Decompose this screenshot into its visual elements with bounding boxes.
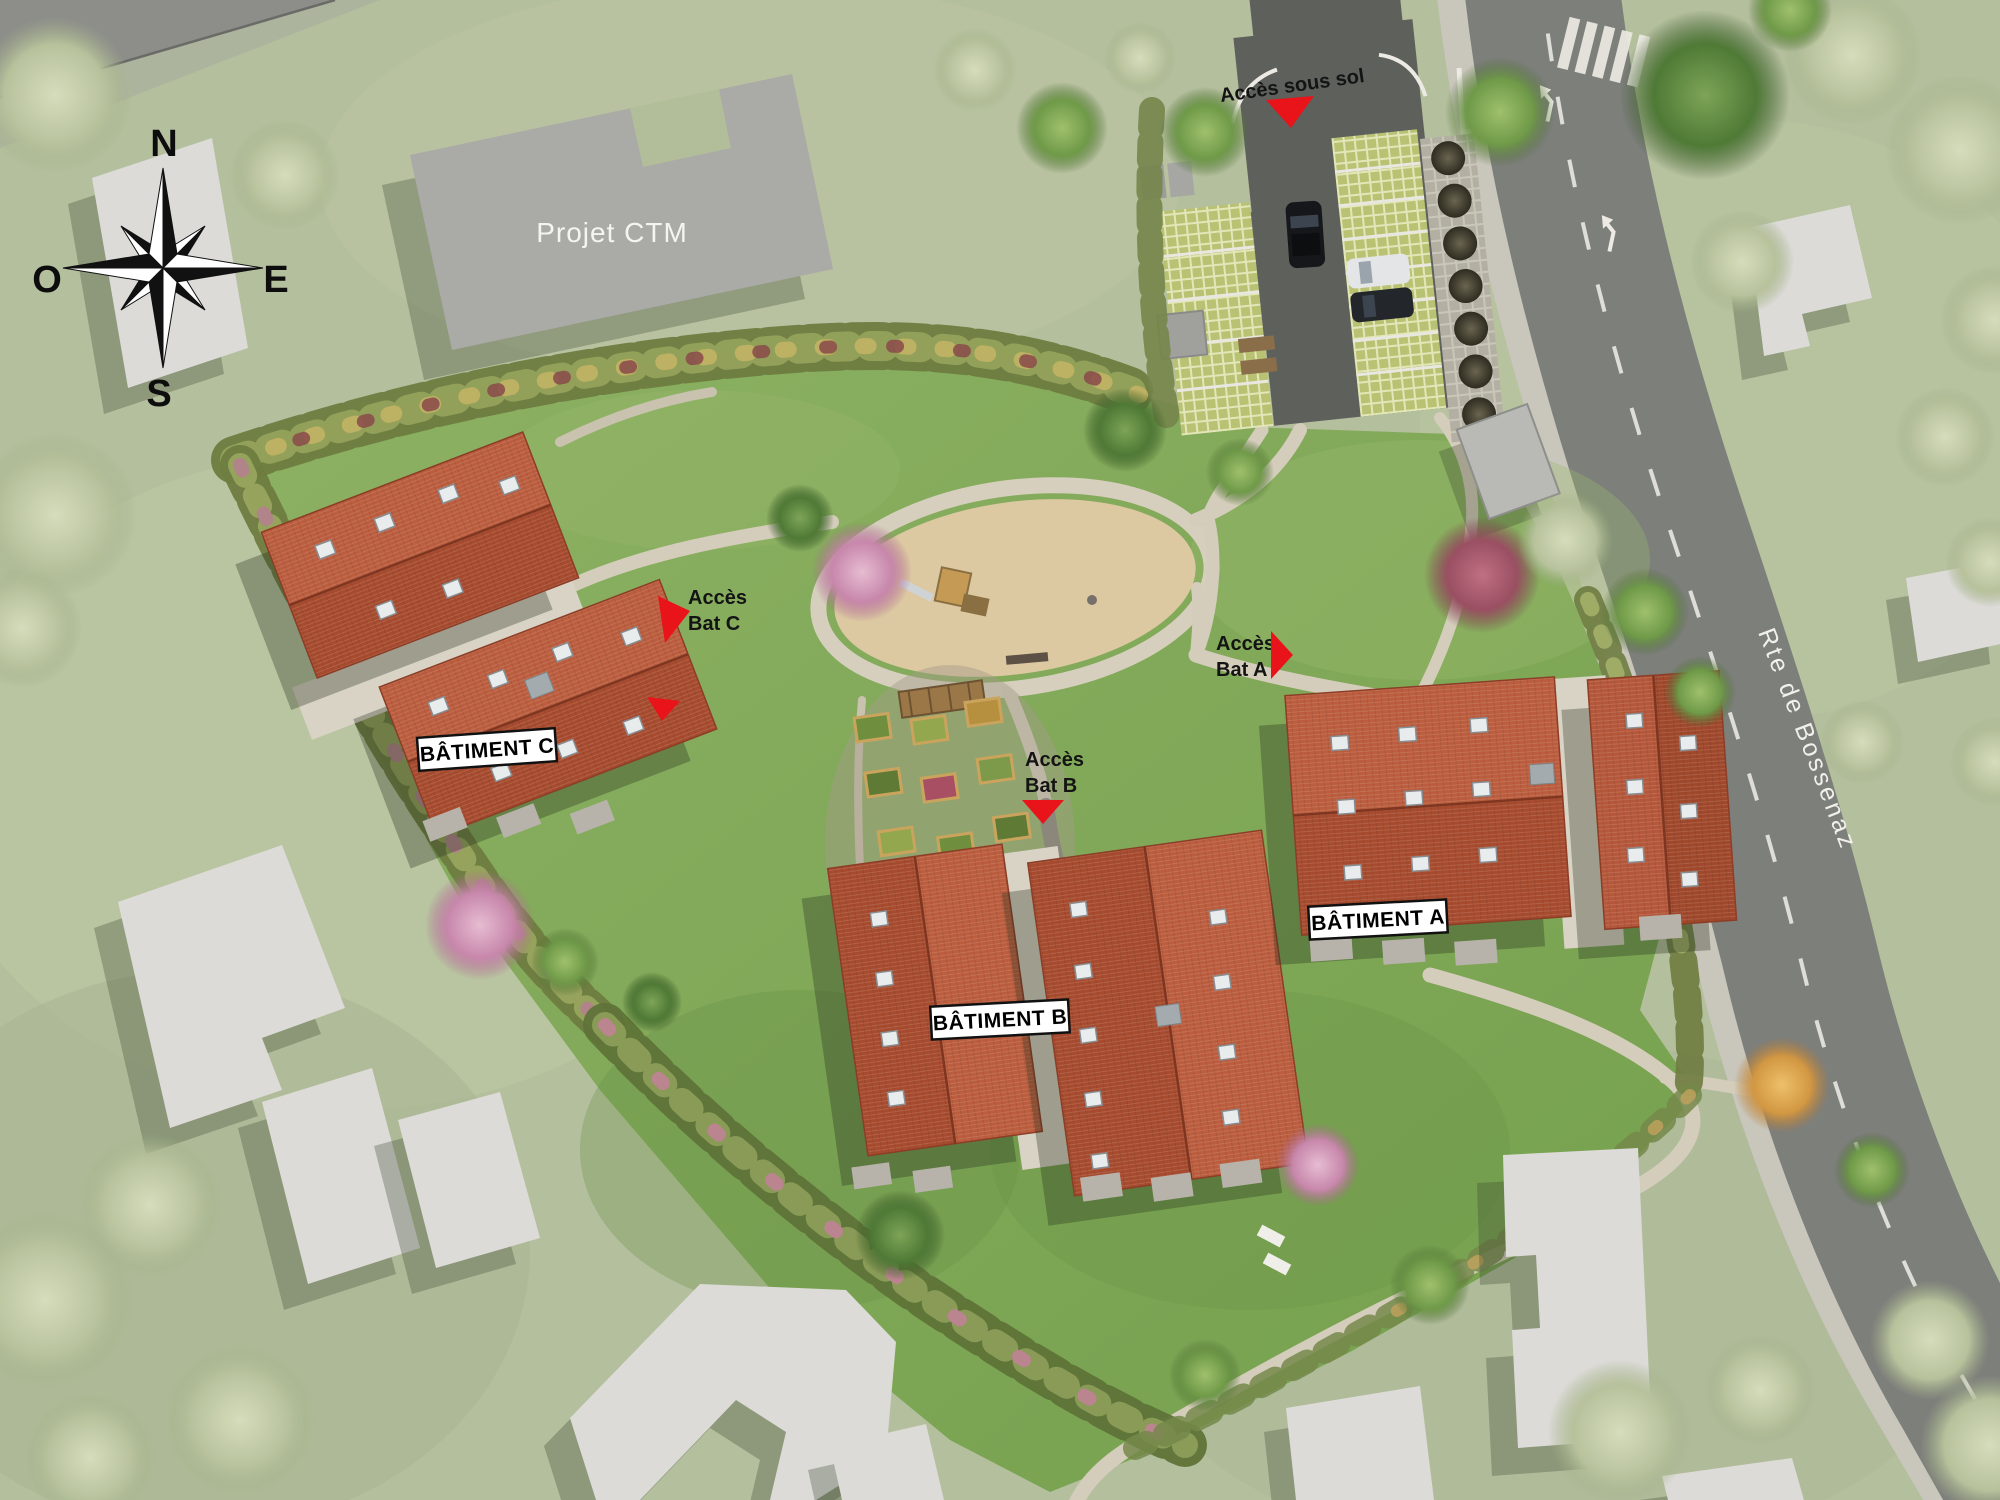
blossom-tree: [425, 870, 535, 980]
autumn-tree: [1734, 1037, 1830, 1133]
access-bat-a-line2: Bat A: [1216, 659, 1267, 681]
building-b: [802, 830, 1309, 1243]
compass-north-label: N: [150, 123, 177, 165]
building-a-nameplate: BÂTIMENT A: [1308, 899, 1448, 939]
building-a1-roof: [1285, 677, 1571, 935]
compass-east-label: E: [263, 259, 288, 301]
site-plan-canvas: Projet CTM: [0, 0, 2000, 1500]
access-bat-b-line1: Accès: [1025, 749, 1084, 771]
car-moving: [1285, 200, 1326, 268]
access-bat-b-line2: Bat B: [1025, 775, 1077, 797]
compass-south-label: S: [146, 373, 171, 415]
access-bat-c-line1: Accès: [688, 587, 747, 609]
compass-west-label: O: [32, 259, 62, 301]
access-bat-a-line1: Accès: [1216, 633, 1275, 655]
building-b-nameplate: BÂTIMENT B: [930, 999, 1070, 1039]
blossom-tree: [1276, 1123, 1360, 1207]
projet-ctm-label: Projet CTM: [536, 217, 688, 248]
site-plan: Projet CTM: [0, 0, 2000, 1500]
access-bat-c-line2: Bat C: [688, 613, 740, 635]
